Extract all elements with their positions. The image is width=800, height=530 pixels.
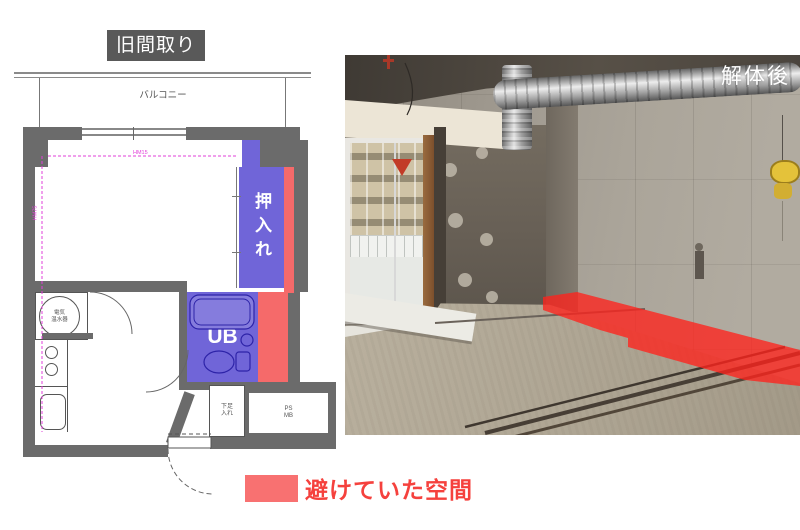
photo-overlay-linework — [345, 55, 800, 435]
legend-red-swatch — [245, 475, 298, 502]
legend-label: 避けていた空間 — [305, 471, 473, 505]
old-floorplan-badge: 旧間取り — [107, 30, 205, 61]
floorplan: バルコニー 押入れ UB — [0, 60, 340, 500]
demolition-photo: 解体後 — [345, 55, 800, 435]
yellow-hoist-lower — [774, 183, 792, 199]
avoided-space-overlay — [543, 292, 800, 386]
yellow-hoist — [770, 160, 800, 184]
legend: 避けていた空間 — [245, 472, 473, 504]
hoist-cable — [782, 115, 783, 161]
hoist-hook-line — [782, 201, 783, 241]
screenshot-root: 旧間取り バルコニー 押入れ UB — [0, 0, 800, 530]
photo-label: 解体後 — [721, 60, 790, 90]
plan-linework — [0, 60, 340, 500]
